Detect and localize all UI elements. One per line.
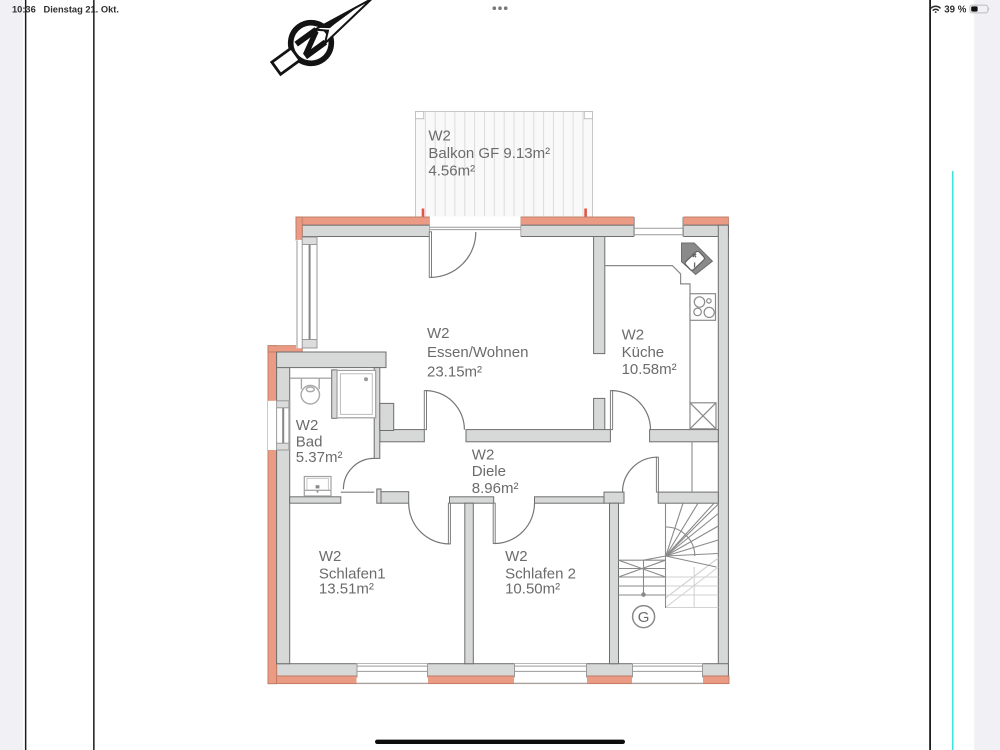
svg-text:5.37m²: 5.37m² [296, 449, 343, 466]
svg-text:W2: W2 [622, 326, 645, 343]
svg-text:8.96m²: 8.96m² [472, 480, 519, 497]
svg-text:Küche: Küche [622, 344, 665, 361]
svg-text:39 %: 39 % [944, 5, 966, 16]
svg-text:Balkon GF 9.13m²: Balkon GF 9.13m² [428, 145, 550, 162]
svg-text:W2: W2 [319, 548, 342, 565]
svg-text:Diele: Diele [472, 463, 506, 480]
svg-text:W2: W2 [428, 128, 451, 145]
svg-text:4.56m²: 4.56m² [428, 163, 475, 180]
svg-text:13.51m²: 13.51m² [319, 580, 374, 597]
svg-text:W2: W2 [505, 548, 527, 565]
svg-text:Bad: Bad [296, 434, 323, 451]
svg-text:10.58m²: 10.58m² [622, 361, 677, 378]
svg-text:10.50m²: 10.50m² [505, 580, 560, 597]
svg-text:G: G [638, 609, 650, 626]
svg-text:W2: W2 [296, 417, 319, 434]
svg-text:Dienstag 21. Okt.: Dienstag 21. Okt. [44, 5, 119, 15]
svg-text:23.15m²: 23.15m² [427, 364, 482, 381]
svg-text:10:36: 10:36 [12, 5, 36, 15]
svg-text:W2: W2 [472, 447, 495, 464]
svg-text:Essen/Wohnen: Essen/Wohnen [427, 344, 528, 361]
svg-text:W2: W2 [427, 325, 450, 342]
